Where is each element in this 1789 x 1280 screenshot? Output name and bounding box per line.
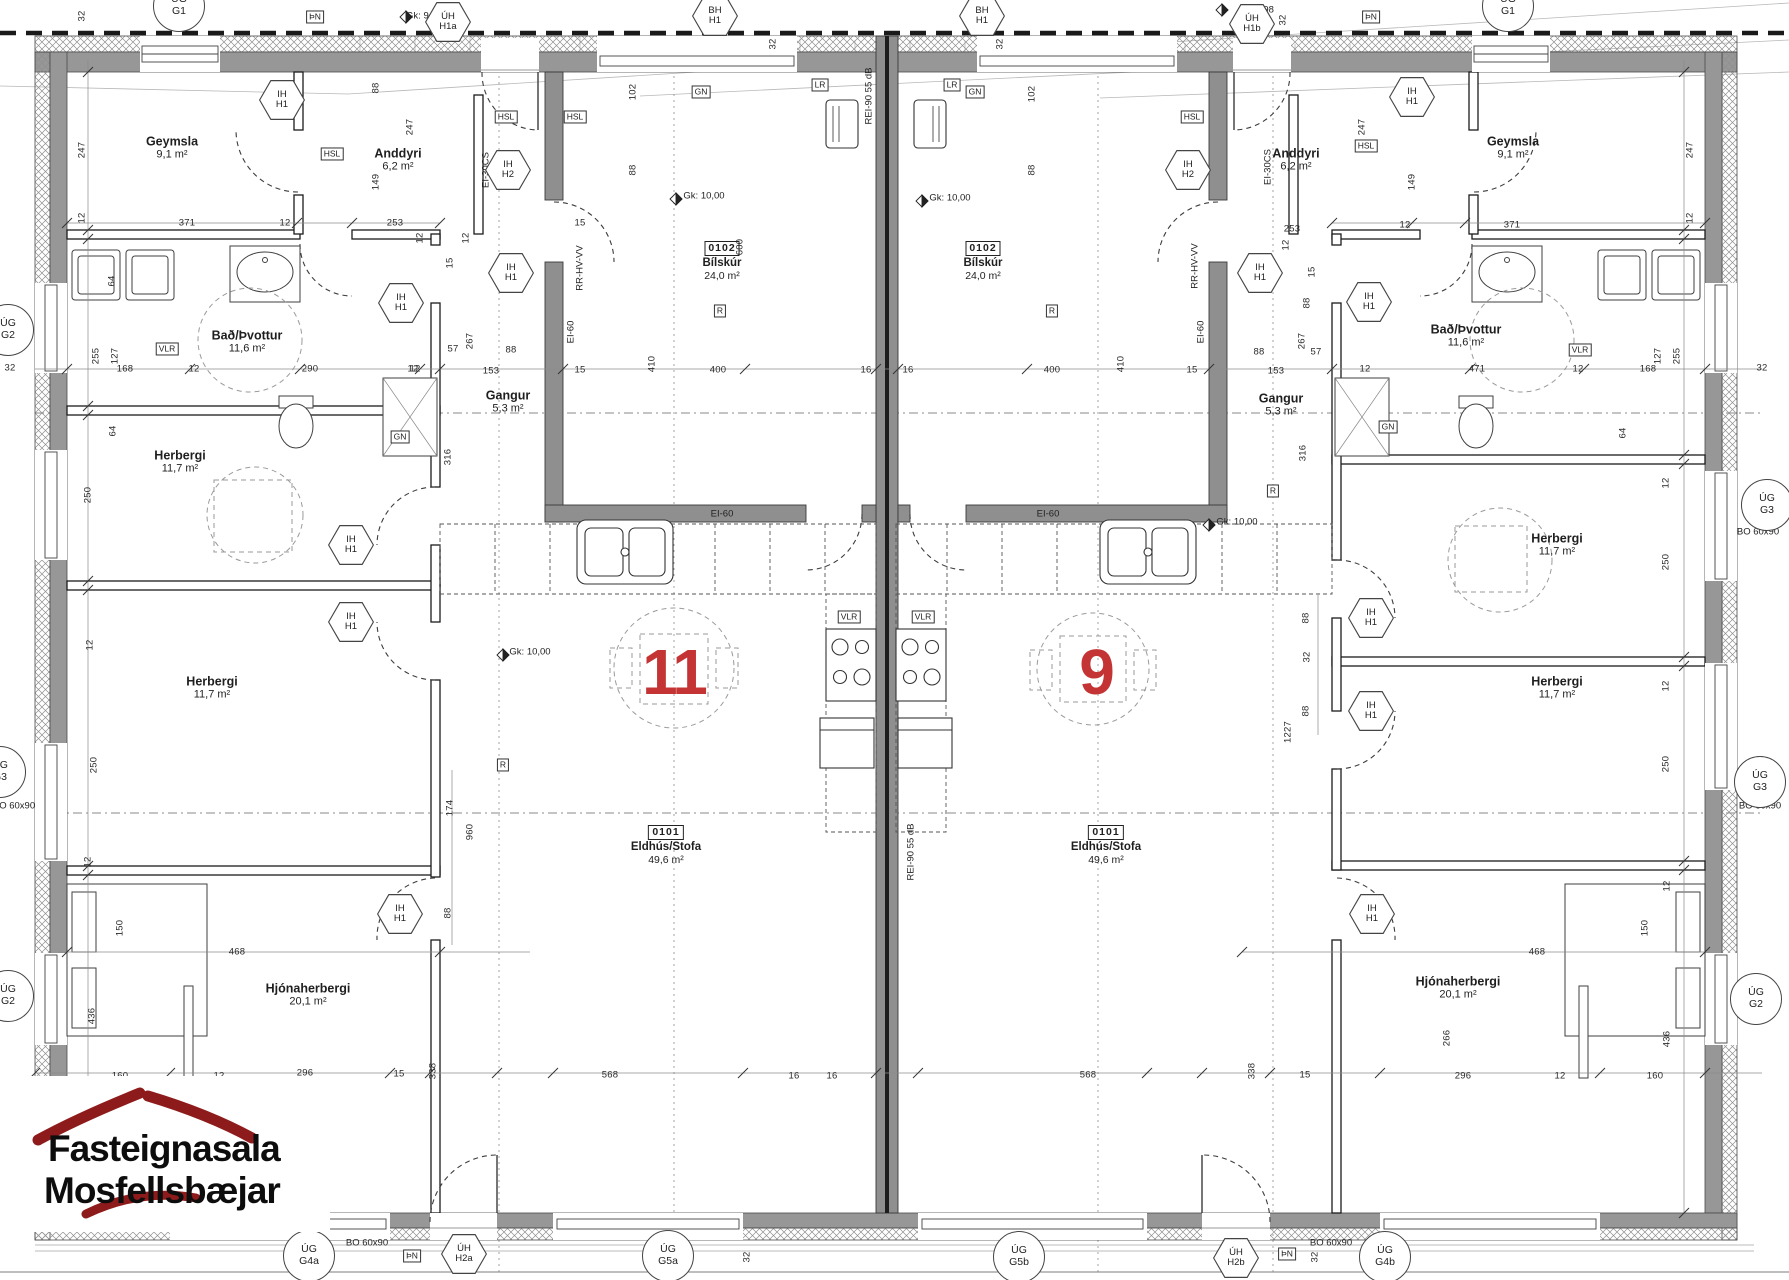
dim-label: 12 — [77, 213, 88, 224]
dim-label: 12 — [1360, 364, 1371, 375]
dim-label: 15 — [575, 365, 586, 376]
dim-label: 102 — [1027, 86, 1038, 102]
dim-label: 471 — [1469, 364, 1485, 375]
dim-label: 16 — [789, 1071, 800, 1082]
room-label: Geymsla9,1 m² — [146, 134, 198, 161]
box-tag: HSL — [1181, 110, 1204, 123]
box-tag: R — [497, 758, 509, 771]
hex-tag: IHH1 — [1346, 282, 1392, 322]
dim-label: 88 — [443, 908, 454, 919]
hex-tag: IHH2 — [1165, 150, 1211, 190]
box-tag: ÞN — [1362, 10, 1380, 23]
dim-label: 15 — [1300, 1070, 1311, 1081]
annotation-text: Gk: 10,00 — [683, 191, 724, 202]
annotation-text: EI-30CS — [1263, 149, 1274, 185]
circle-tag: ÚGG3 — [0, 746, 26, 798]
hex-tag-label: ÚHH2b — [1214, 1239, 1258, 1277]
dim-label: 16 — [827, 1071, 838, 1082]
box-tag: VLR — [1569, 343, 1592, 356]
dim-label: 12 — [1661, 681, 1672, 692]
dim-label: 247 — [405, 119, 416, 135]
hex-tag: ÚHH2a — [441, 1234, 487, 1274]
dim-label: 15 — [1307, 267, 1318, 278]
hex-tag-label: IHH1 — [489, 254, 533, 292]
dim-label: 255 — [1672, 348, 1683, 364]
dim-label: 410 — [1116, 356, 1127, 372]
dim-label: 253 — [1284, 224, 1300, 235]
room-label: Anddyri6,2 m² — [1272, 146, 1319, 173]
hex-tag: IHH1 — [1389, 77, 1435, 117]
box-tag: R — [1267, 484, 1279, 497]
dim-label: 250 — [89, 757, 100, 773]
dim-label: 32 — [1757, 363, 1768, 374]
circle-tag: ÚGG1 — [153, 0, 205, 32]
annotation-text: Gk: 10,00 — [1216, 517, 1257, 528]
hex-tag-label: IHH1 — [1390, 78, 1434, 116]
dim-label: 64 — [108, 426, 119, 437]
room-label: Gangur5,3 m² — [486, 388, 530, 415]
annotation-text: EI-60 — [1196, 321, 1207, 344]
dim-label: 88 — [1027, 165, 1038, 176]
box-tag: HSL — [321, 147, 344, 160]
dim-label: 12 — [1281, 240, 1292, 251]
dim-label: 16 — [861, 365, 872, 376]
room-label: Herbergi11,7 m² — [1531, 674, 1582, 701]
box-tag: ÞN — [1278, 1247, 1296, 1260]
dim-label: 32 — [1302, 652, 1313, 663]
hex-tag: IHH1 — [1348, 598, 1394, 638]
hex-tag-label: IHH1 — [329, 603, 373, 641]
annotation-text: RR-HV-VV — [1190, 243, 1201, 288]
room-id-label: 0102Bílskúr24,0 m² — [964, 241, 1003, 283]
hex-tag: IHH1 — [1237, 253, 1283, 293]
dim-label: 12 — [410, 364, 421, 375]
room-label: Herbergi11,7 m² — [1531, 531, 1582, 558]
box-tag: GN — [1379, 420, 1398, 433]
dim-label: 88 — [1301, 613, 1312, 624]
hex-tag: ÚHH1a — [425, 2, 471, 42]
hex-tag: IHH1 — [488, 253, 534, 293]
hex-tag: IHH1 — [1349, 894, 1395, 934]
dim-label: 468 — [1529, 947, 1545, 958]
dim-label: 15 — [394, 1069, 405, 1080]
box-tag: LR — [944, 78, 961, 91]
dim-label: 247 — [77, 142, 88, 158]
circle-tag: ÚGG3 — [1741, 479, 1789, 531]
annotation-text: BO 60x90 — [346, 1238, 388, 1249]
hex-tag: IHH1 — [377, 894, 423, 934]
hex-tag-label: IHH1 — [378, 895, 422, 933]
dim-label: 960 — [465, 824, 476, 840]
hex-tag: IHH1 — [259, 80, 305, 120]
circle-tag: ÚGG2 — [1730, 973, 1782, 1025]
hex-tag-label: IHH1 — [1238, 254, 1282, 292]
room-id-label: 0101Eldhús/Stofa49,6 m² — [1071, 825, 1141, 867]
dim-label: 64 — [107, 276, 118, 287]
annotation-text: EI-60 — [1037, 509, 1060, 520]
dim-label: 371 — [1504, 220, 1520, 231]
dim-label: 250 — [1661, 554, 1672, 570]
dim-label: 568 — [602, 1070, 618, 1081]
unit-number: 11 — [642, 635, 706, 709]
dim-label: 149 — [1407, 174, 1418, 190]
dim-label: 149 — [371, 174, 382, 190]
dim-label: 168 — [117, 364, 133, 375]
dim-label: 153 — [1268, 366, 1284, 377]
hex-tag-label: IHH1 — [260, 81, 304, 119]
hex-tag: BHH1 — [692, 0, 738, 36]
dim-label: 12 — [1573, 364, 1584, 375]
dim-label: 250 — [1661, 756, 1672, 772]
dim-label: 568 — [1080, 1070, 1096, 1081]
hex-tag-label: IHH1 — [1347, 283, 1391, 321]
dim-label: 127 — [1653, 348, 1664, 364]
dim-label: 15 — [575, 218, 586, 229]
hex-tag-label: IHH1 — [1350, 895, 1394, 933]
hex-tag-label: ÚHH1a — [426, 3, 470, 41]
dim-label: 150 — [115, 920, 126, 936]
dim-label: 88 — [1254, 347, 1265, 358]
annotation-text: Gk: 10,00 — [929, 193, 970, 204]
circle-tag: ÚGG5a — [642, 1230, 694, 1280]
dim-label: 296 — [1455, 1071, 1471, 1082]
dim-label: 57 — [1311, 347, 1322, 358]
box-tag: VLR — [156, 342, 179, 355]
dim-label: 32 — [742, 1252, 753, 1263]
dim-label: 16 — [903, 365, 914, 376]
hex-tag-label: IHH1 — [379, 284, 423, 322]
circle-tag: ÚGG4a — [283, 1230, 335, 1280]
room-label: Hjónaherbergi20,1 m² — [1416, 974, 1501, 1001]
circle-tag: ÚGG2 — [0, 970, 34, 1022]
hex-tag-label: IHH1 — [329, 526, 373, 564]
hex-tag: IHH1 — [1348, 691, 1394, 731]
room-label: Herbergi11,7 m² — [186, 674, 237, 701]
box-tag: HSL — [495, 110, 518, 123]
dim-label: 88 — [371, 83, 382, 94]
dim-label: 250 — [83, 487, 94, 503]
dim-label: 88 — [1302, 298, 1313, 309]
dim-label: 88 — [628, 165, 639, 176]
room-label: Bað/Þvottur11,6 m² — [212, 328, 283, 355]
dim-label: 1227 — [1283, 721, 1294, 743]
hex-tag-label: IHH1 — [1349, 692, 1393, 730]
dim-label: 168 — [1640, 364, 1656, 375]
dim-label: 15 — [445, 258, 456, 269]
box-tag: GN — [391, 430, 410, 443]
dim-label: 64 — [1618, 428, 1629, 439]
dim-label: 88 — [506, 345, 517, 356]
dim-label: 12 — [85, 640, 96, 651]
room-label: Herbergi11,7 m² — [154, 448, 205, 475]
dim-label: 12 — [189, 364, 200, 375]
dim-label: 267 — [465, 333, 476, 349]
annotation-text: EI-60 — [711, 509, 734, 520]
dim-label: 267 — [1297, 333, 1308, 349]
dim-label: 410 — [647, 356, 658, 372]
hex-tag: IHH1 — [328, 525, 374, 565]
annotation-text: REI-90 55 dB — [906, 823, 917, 880]
annotation-text: EI-60 — [566, 321, 577, 344]
annotation-text: BO 60x90 — [1310, 1238, 1352, 1249]
logo-line1: Fasteignasala — [48, 1128, 280, 1170]
dim-label: 32 — [995, 39, 1006, 50]
dim-label: 468 — [229, 947, 245, 958]
dim-label: 12 — [415, 233, 426, 244]
hex-tag-label: IHH1 — [1349, 599, 1393, 637]
box-tag: ÞN — [403, 1249, 421, 1262]
room-label: Hjónaherbergi20,1 m² — [266, 981, 351, 1008]
dim-label: 12 — [1661, 478, 1672, 489]
hex-tag-label: ÚHH2a — [442, 1235, 486, 1273]
annotation-text: Gk: 10,00 — [509, 647, 550, 658]
dim-label: 12 — [1662, 881, 1673, 892]
box-tag: ÞN — [306, 10, 324, 23]
unit-number: 9 — [1079, 635, 1113, 709]
dim-label: 247 — [1357, 119, 1368, 135]
realtor-logo: Fasteignasala Mosfellsbæjar — [18, 1076, 330, 1232]
box-tag: HSL — [1355, 139, 1378, 152]
logo-line2: Mosfellsbæjar — [44, 1170, 280, 1212]
dim-label: 150 — [1640, 920, 1651, 936]
dim-label: 12 — [1555, 1071, 1566, 1082]
dim-label: 12 — [461, 233, 472, 244]
dim-label: 253 — [387, 218, 403, 229]
annotation-text: BO 60x90 — [0, 801, 35, 812]
room-label: Anddyri6,2 m² — [374, 146, 421, 173]
dim-label: 338 — [428, 1063, 439, 1079]
box-tag: R — [714, 304, 726, 317]
dim-label: 160 — [1647, 1071, 1663, 1082]
dim-label: 32 — [1310, 1252, 1321, 1263]
hex-tag-label: BHH1 — [693, 0, 737, 35]
floorplan-page: Geymsla9,1 m²Anddyri6,2 m²Bað/Þvottur11,… — [0, 0, 1789, 1280]
dim-label: 127 — [110, 348, 121, 364]
room-id-label: 0101Eldhús/Stofa49,6 m² — [631, 825, 701, 867]
circle-tag: ÚGG3 — [1734, 756, 1786, 808]
hex-tag-label: IHH2 — [486, 151, 530, 189]
box-tag: LR — [812, 78, 829, 91]
dim-label: 174 — [445, 800, 456, 816]
dim-label: 102 — [628, 84, 639, 100]
dim-label: 32 — [77, 11, 88, 22]
hex-tag: IHH1 — [328, 602, 374, 642]
dim-label: 32 — [768, 39, 779, 50]
hex-tag-label: IHH2 — [1166, 151, 1210, 189]
hex-tag: ÚHH2b — [1213, 1238, 1259, 1278]
circle-tag: ÚGG2 — [0, 304, 34, 356]
box-tag: GN — [966, 85, 985, 98]
room-label: Geymsla9,1 m² — [1487, 134, 1539, 161]
hex-tag-label: BHH1 — [960, 0, 1004, 35]
dim-label: 436 — [1662, 1031, 1673, 1047]
box-tag: GN — [692, 85, 711, 98]
dim-label: 400 — [710, 365, 726, 376]
dim-label: 32 — [1278, 15, 1289, 26]
dim-label: 12 — [280, 218, 291, 229]
dim-label: 371 — [179, 218, 195, 229]
box-tag: HSL — [564, 110, 587, 123]
dim-label: 316 — [443, 449, 454, 465]
dim-label: 255 — [91, 348, 102, 364]
dim-label: 32 — [5, 363, 16, 374]
hex-tag-label: ÚHH1b — [1230, 5, 1274, 43]
circle-tag: ÚGG1 — [1482, 0, 1534, 32]
box-tag: R — [1046, 304, 1058, 317]
annotation-text: REI-90 55 dB — [864, 67, 875, 124]
dim-label: 600 — [735, 239, 746, 255]
circle-tag: ÚGG4b — [1359, 1231, 1411, 1280]
dim-label: 338 — [1247, 1063, 1258, 1079]
box-tag: VLR — [838, 610, 861, 623]
hex-tag: IHH1 — [378, 283, 424, 323]
dim-label: 247 — [1685, 142, 1696, 158]
room-label: Bað/Þvottur11,6 m² — [1431, 322, 1502, 349]
dim-label: 436 — [87, 1008, 98, 1024]
dim-label: 290 — [302, 364, 318, 375]
dim-label: 88 — [1301, 706, 1312, 717]
dim-label: 316 — [1298, 445, 1309, 461]
dim-label: 266 — [1442, 1030, 1453, 1046]
dim-label: 400 — [1044, 365, 1060, 376]
dim-label: 12 — [1685, 213, 1696, 224]
circle-tag: ÚGG5b — [993, 1231, 1045, 1280]
hex-tag: IHH2 — [485, 150, 531, 190]
dim-label: 12 — [83, 857, 94, 868]
box-tag: VLR — [912, 610, 935, 623]
dim-label: 153 — [483, 366, 499, 377]
dim-label: 15 — [1187, 365, 1198, 376]
room-label: Gangur5,3 m² — [1259, 391, 1303, 418]
annotation-text: RR-HV-VV — [575, 245, 586, 290]
dim-label: 57 — [448, 344, 459, 355]
dim-label: 12 — [1400, 220, 1411, 231]
hex-tag: BHH1 — [959, 0, 1005, 36]
